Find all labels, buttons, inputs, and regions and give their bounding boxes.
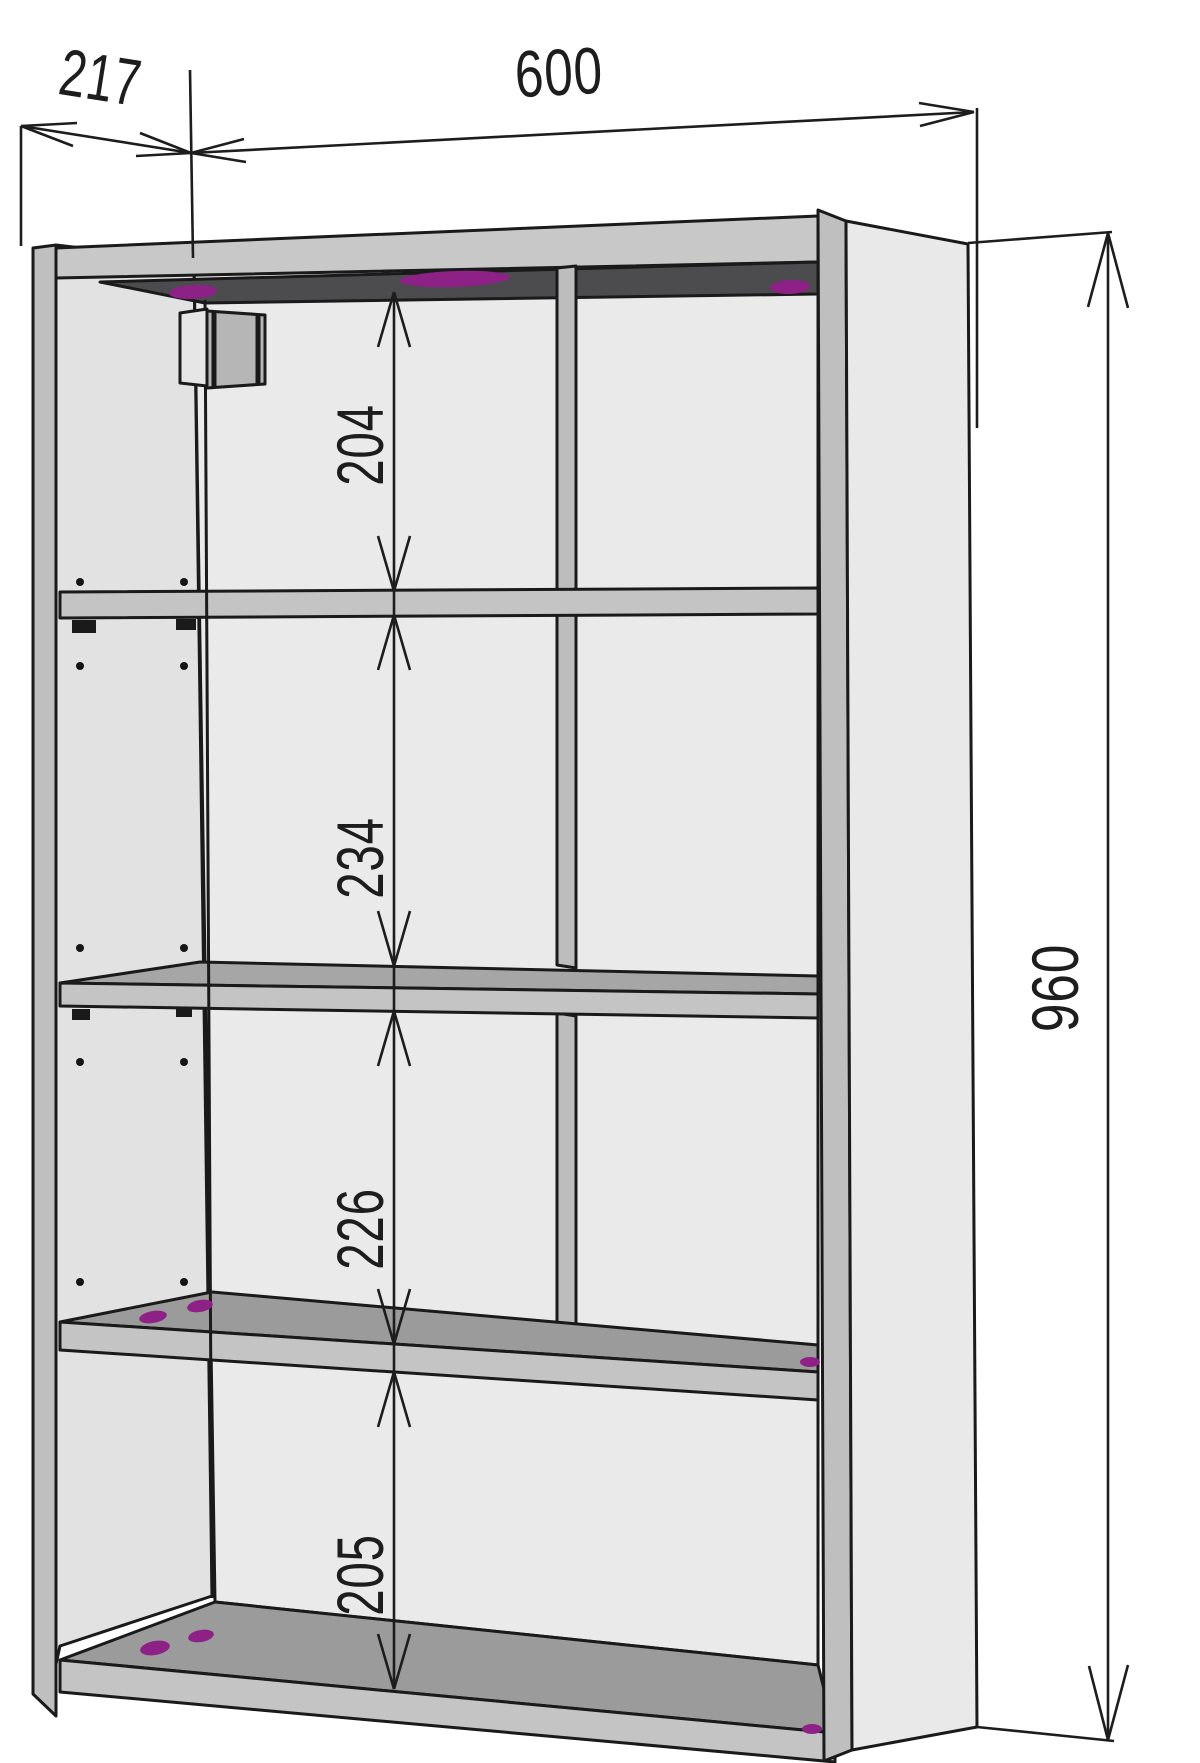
left-panel-front-edge [33, 245, 56, 1716]
dim-600-line [191, 112, 974, 153]
dim-opening-1-label: 204 [324, 404, 397, 485]
left-panel-inner-face [56, 245, 212, 1664]
technical-drawing-page: 217 600 960 204 234 226 205 [0, 0, 1200, 1763]
dim-opening-2-label: 234 [324, 817, 397, 898]
dim-depth-label: 217 [54, 36, 146, 121]
dim-960-extension-top [968, 232, 1112, 243]
cabinet-body [33, 210, 977, 1762]
dim-height-label: 960 [1018, 944, 1093, 1032]
center-divider-upper [557, 266, 576, 592]
center-divider-lower [557, 1013, 576, 1330]
dim-width-label: 600 [513, 33, 605, 112]
cabinet-drawing-canvas: 217 600 960 204 234 226 205 [0, 0, 1200, 1763]
back-panel [194, 226, 818, 1665]
dim-960-extension-bottom [977, 1727, 1114, 1741]
dim-opening-3-label: 226 [324, 1188, 397, 1269]
dim-217-line [21, 126, 191, 153]
shelf-1 [60, 588, 818, 618]
wall-bracket-plate [180, 309, 207, 386]
dim-opening-4-label: 205 [324, 1534, 397, 1615]
right-panel-outer-face [846, 221, 977, 1750]
center-divider-middle [557, 613, 576, 968]
dim-217-extension-right [190, 70, 193, 258]
